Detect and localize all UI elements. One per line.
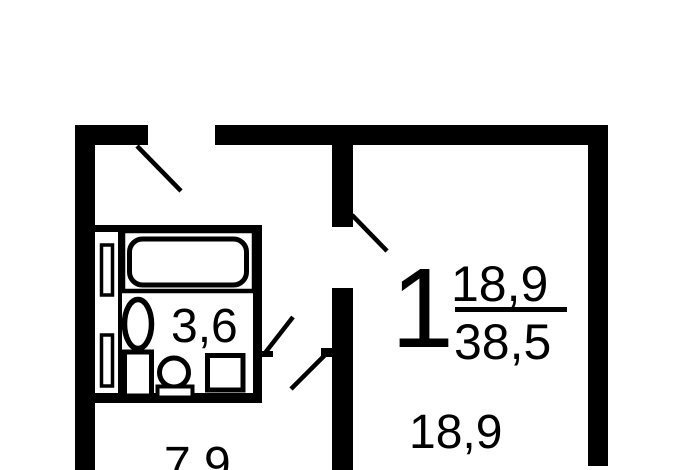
floor-plan-drawing	[0, 0, 700, 470]
wall-right	[588, 145, 608, 466]
wall-top-right	[215, 125, 608, 145]
wall-middle-upper	[332, 145, 353, 227]
kitchen-area-label: 7,9	[164, 441, 231, 470]
ventilation-shaft-icon	[102, 335, 113, 386]
bathroom-area-label: 3,6	[171, 303, 238, 351]
entrance-door-swing	[137, 146, 181, 191]
toilet-bowl-icon	[160, 358, 189, 387]
living-area-label: 18,9	[451, 259, 548, 309]
bathroom-door-swing	[265, 317, 293, 353]
area-fraction-bar	[455, 307, 567, 312]
sink-icon	[125, 300, 152, 349]
kitchen-door-swing	[291, 355, 325, 389]
wall-middle-lower	[332, 288, 353, 470]
room-door-swing	[352, 215, 387, 251]
sink-pedestal-icon	[125, 352, 152, 396]
room-area-label: 18,9	[409, 409, 502, 457]
bathtub-icon	[130, 239, 247, 285]
wall-left	[75, 125, 95, 470]
toilet-tank-icon	[158, 387, 193, 398]
washing-machine-icon	[208, 356, 244, 391]
total-area-label: 38,5	[454, 317, 551, 367]
floor-plan: 1 18,9 38,5 18,9 3,6 7,9	[0, 0, 700, 470]
room-number-label: 1	[391, 252, 454, 365]
ventilation-shaft-icon	[102, 245, 113, 295]
